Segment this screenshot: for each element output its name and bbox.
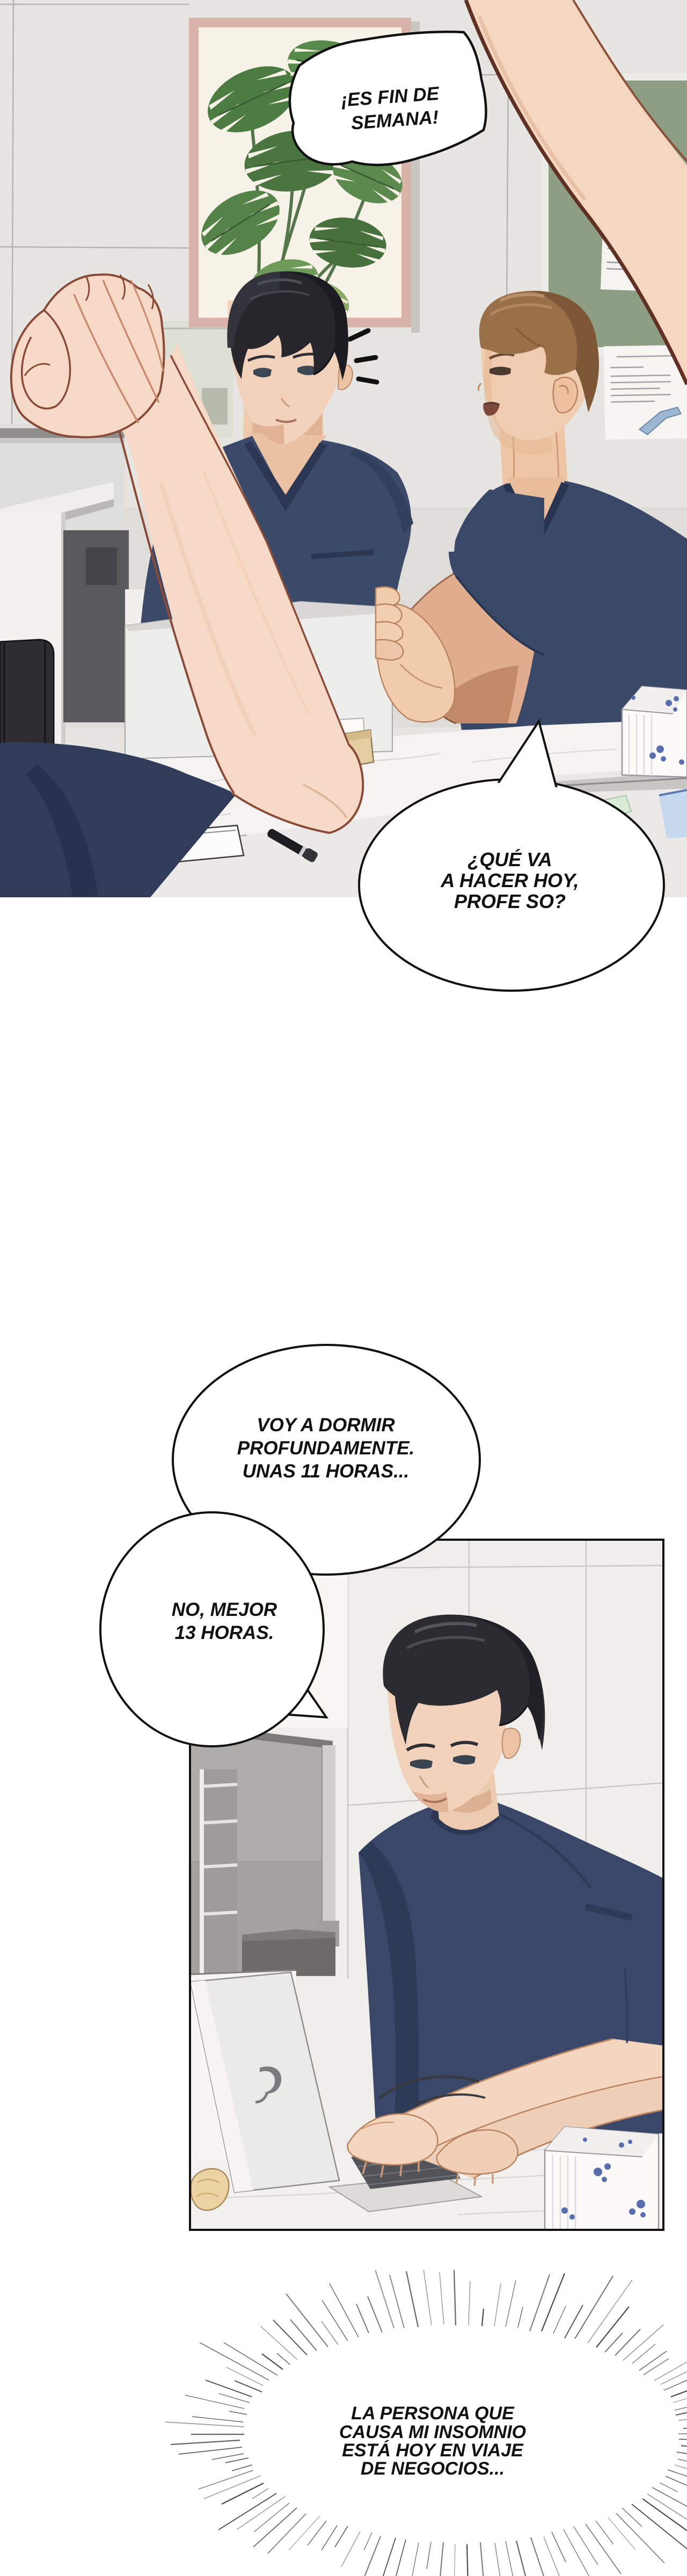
svg-text:LA PERSONA QUE: LA PERSONA QUE bbox=[351, 2403, 515, 2424]
svg-text:¿QUÉ VA: ¿QUÉ VA bbox=[467, 848, 552, 870]
svg-text:ESTÁ HOY EN VIAJE: ESTÁ HOY EN VIAJE bbox=[342, 2440, 524, 2461]
svg-text:13 HORAS.: 13 HORAS. bbox=[175, 1622, 274, 1643]
svg-text:UNAS 11 HORAS...: UNAS 11 HORAS... bbox=[243, 1461, 410, 1482]
svg-text:CAUSA MI INSOMNIO: CAUSA MI INSOMNIO bbox=[339, 2422, 526, 2442]
svg-text:NO, MEJOR: NO, MEJOR bbox=[172, 1599, 277, 1620]
svg-text:PROFUNDAMENTE.: PROFUNDAMENTE. bbox=[237, 1438, 415, 1459]
svg-text:VOY A DORMIR: VOY A DORMIR bbox=[257, 1415, 395, 1436]
svg-text:DE NEGOCIOS...: DE NEGOCIOS... bbox=[361, 2458, 505, 2479]
svg-text:A HACER HOY,: A HACER HOY, bbox=[440, 869, 579, 891]
svg-text:PROFE SO?: PROFE SO? bbox=[454, 890, 566, 912]
